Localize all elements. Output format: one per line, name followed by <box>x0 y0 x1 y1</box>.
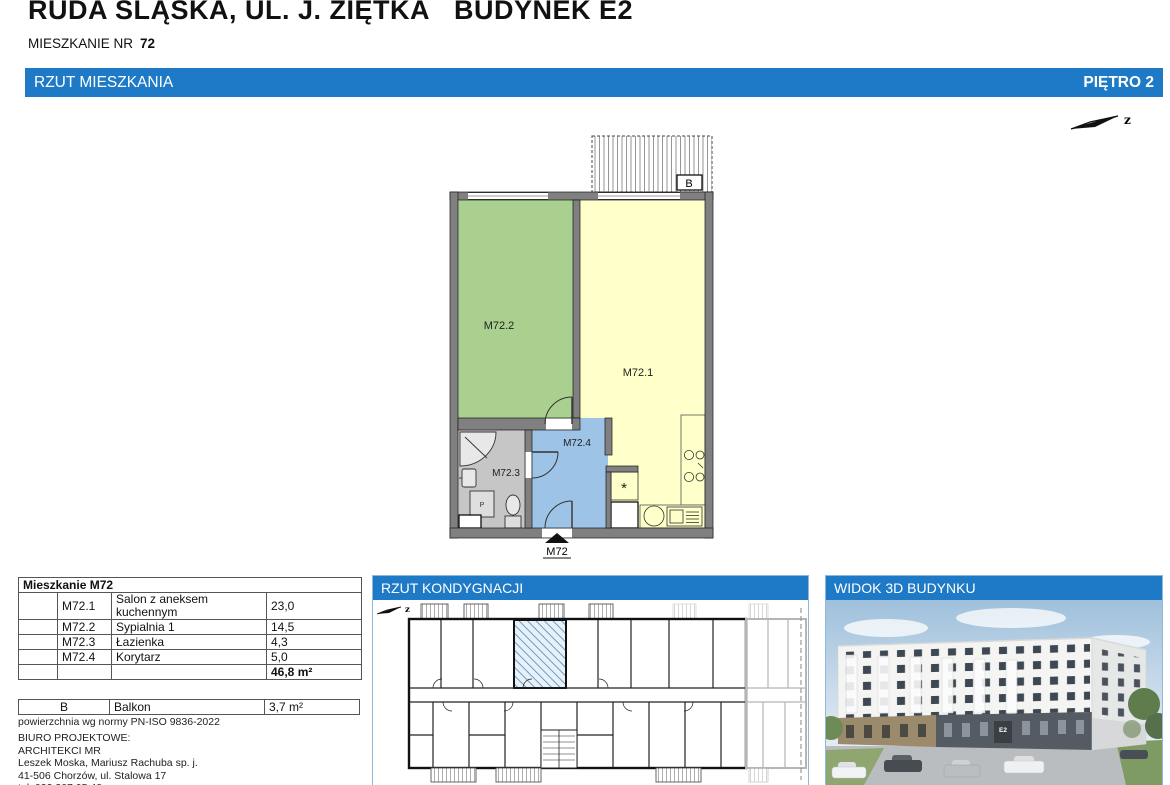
room-area: 14,5 <box>267 620 362 635</box>
room-area: 4,3 <box>267 635 362 650</box>
view-3d-panel: WIDOK 3D BUDYNKU <box>825 575 1163 785</box>
room-name: Łazienka <box>112 635 267 650</box>
apartment-floor-plan: B P <box>440 125 723 575</box>
norm-note: powierzchnia wg normy PN-ISO 9836-2022 <box>18 716 220 728</box>
room-label-corridor: M72.4 <box>563 438 591 449</box>
office-line: BIURO PROJEKTOWE: <box>18 732 198 745</box>
apartment-number: 72 <box>140 36 155 51</box>
mini-stairwell <box>541 730 577 768</box>
mini-highlighted-apartment <box>514 620 566 688</box>
building-3d-render: E2 <box>826 600 1162 785</box>
room-name: Salon z aneksem kuchennym <box>112 593 267 620</box>
table-row: M72.2 Sypialnia 1 14,5 <box>19 620 362 635</box>
mini-adjacent-section <box>746 608 806 782</box>
shaft-box <box>459 515 481 528</box>
apartment-label: MIESZKANIE NR <box>28 36 133 51</box>
room-label-bathroom: M72.3 <box>492 468 520 479</box>
balcony-area-table: B Balkon 3,7 m² <box>18 699 360 715</box>
room-corridor <box>532 418 608 528</box>
room-name: Sypialnia 1 <box>112 620 267 635</box>
plan-sheet: RUDA ŚLĄSKA, UL. J. ZIĘTKABUDYNEK E2 MIE… <box>0 0 1170 785</box>
table-row: M72.4 Korytarz 5,0 <box>19 650 362 665</box>
room-label-bedroom: M72.2 <box>484 320 515 332</box>
room-area: 23,0 <box>267 593 362 620</box>
mini-balconies-top <box>421 604 613 619</box>
room-area: 5,0 <box>267 650 362 665</box>
table-row: M72.3 Łazienka 4,3 <box>19 635 362 650</box>
balcony-name: Balkon <box>110 700 265 715</box>
table-row: M72.1 Salon z aneksem kuchennym 23,0 <box>19 593 362 620</box>
mini-balconies-bottom <box>431 768 701 782</box>
apartment-area-table: Mieszkanie M72 M72.1 Salon z aneksem kuc… <box>18 577 362 680</box>
room-code: M72.3 <box>58 635 112 650</box>
balcony-code: B <box>19 700 110 715</box>
kitchen-counter <box>681 415 705 505</box>
room-code: M72.1 <box>58 593 112 620</box>
north-arrow-label: z <box>405 605 410 615</box>
north-arrow-label: z <box>1124 113 1131 127</box>
floor-badge: PIĘTRO 2 <box>1083 74 1154 92</box>
page-title-building: BUDYNEK E2 <box>454 0 633 25</box>
room-code: M72.4 <box>58 650 112 665</box>
car <box>1120 750 1148 759</box>
table-header-row: Mieszkanie M72 <box>19 578 362 593</box>
entrance-label: M72 <box>546 546 567 558</box>
room-label-living: M72.1 <box>623 367 654 379</box>
dishwasher-icon <box>667 507 702 526</box>
section-bar-title: RZUT MIESZKANIA <box>34 74 173 92</box>
balcony-row: B Balkon 3,7 m² <box>19 700 360 715</box>
washer-label: P <box>480 502 485 509</box>
office-line: 41-506 Chorzów, ul. Stalowa 17 <box>18 770 198 783</box>
building-entrance-label: E2 <box>999 727 1007 734</box>
apartment-subtitle: MIESZKANIE NR72 <box>28 36 155 51</box>
table-total-row: 46,8 m² <box>19 665 362 680</box>
office-line: Leszek Moska, Mariusz Rachuba sp. j. <box>18 757 198 770</box>
floor-overview-plan: z <box>373 600 808 785</box>
table-title: Mieszkanie M72 <box>19 578 362 593</box>
room-name: Korytarz <box>112 650 267 665</box>
floor-overview-header: RZUT KONDYGNACJI <box>373 576 808 600</box>
total-area: 46,8 m² <box>267 665 362 680</box>
balcony-label: B <box>685 178 692 190</box>
page-title: RUDA ŚLĄSKA, UL. J. ZIĘTKABUDYNEK E2 <box>28 0 633 26</box>
north-arrow-icon: z <box>377 605 410 615</box>
toilet-icon <box>506 495 520 515</box>
floor-overview-panel: RZUT KONDYGNACJI z <box>372 575 809 785</box>
office-line: ARCHITEKCI MR <box>18 745 198 758</box>
balcony-area: 3,7 m² <box>265 700 360 715</box>
north-arrow-icon: z <box>1068 108 1132 136</box>
page-title-main: RUDA ŚLĄSKA, UL. J. ZIĘTKA <box>28 0 430 25</box>
section-bar: RZUT MIESZKANIA PIĘTRO 2 <box>25 68 1163 97</box>
sink-icon <box>462 469 476 487</box>
mini-balconies-top-gray <box>673 604 768 619</box>
building: E2 <box>838 638 1146 750</box>
view-3d-header: WIDOK 3D BUDYNKU <box>826 576 1162 600</box>
shaft-asterisk-label: * <box>621 480 627 497</box>
balcony: B <box>592 136 712 192</box>
office-info: BIURO PROJEKTOWE: ARCHITEKCI MR Leszek M… <box>18 732 198 785</box>
room-bedroom <box>458 200 573 418</box>
room-code: M72.2 <box>58 620 112 635</box>
ground-floor-dark <box>936 712 1092 750</box>
